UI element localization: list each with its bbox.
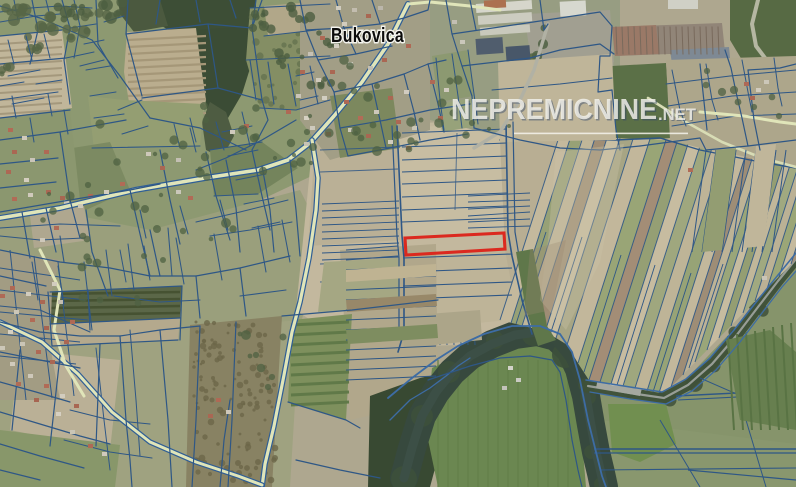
svg-text:NEPREMICNINE: NEPREMICNINE (451, 94, 657, 126)
svg-text:Bukovica: Bukovica (331, 25, 404, 47)
svg-text:.NET: .NET (658, 105, 697, 124)
